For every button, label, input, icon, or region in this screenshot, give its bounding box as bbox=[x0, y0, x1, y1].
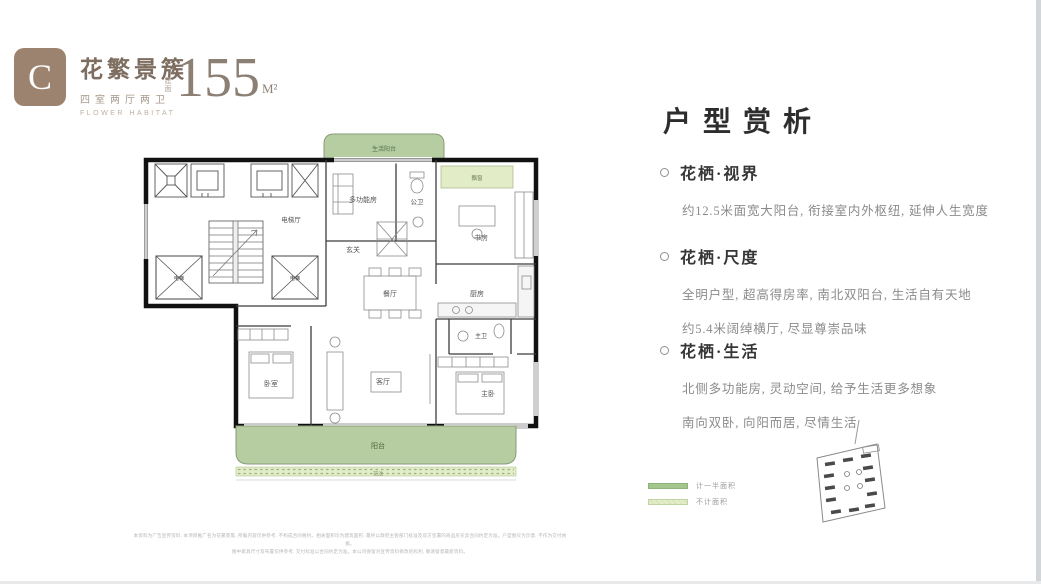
bedroom-label: 卧室 bbox=[264, 379, 278, 388]
no-count-label: 不计面积 bbox=[696, 497, 728, 507]
kitchen-label: 厨房 bbox=[470, 289, 484, 298]
area-unit: M² bbox=[262, 81, 277, 97]
keyplan-pointer bbox=[855, 420, 859, 444]
section-line: 约12.5米面宽大阳台, 衔接室内外枢纽, 延伸人生宽度 bbox=[682, 200, 989, 219]
unit-type-letter: C bbox=[28, 56, 52, 98]
disclaimer-line-2: 图中家具尺寸及布置仅供参考, 交付标准以合同约定为准。本公司保留对宣传资料修改的… bbox=[132, 548, 568, 556]
floorplan-drawing: 生活阳台 飘窗 bbox=[131, 124, 545, 504]
balcony-label: 阳台 bbox=[371, 441, 385, 450]
elevator-right-label: 电梯 bbox=[290, 275, 300, 282]
bay-window-label: 飘窗 bbox=[471, 174, 483, 182]
section-line: 全明户型, 超高得房率, 南北双阳台, 生活自有天地 bbox=[682, 284, 972, 303]
brochure-page: C 花繁景簇 四室两厅两卫 FLOWER HABITAT 建面 155 M² 生… bbox=[0, 0, 1041, 584]
disclaimer-line-1: 本资料为广告宣传资料, 本项目推广名为花繁景簇, 所载内容仅供参考, 不构成合同… bbox=[132, 532, 568, 548]
planter-label: 花池 bbox=[373, 471, 383, 478]
disclaimer: 本资料为广告宣传资料, 本项目推广名为花繁景簇, 所载内容仅供参考, 不构成合同… bbox=[132, 532, 568, 556]
section-line: 北侧多功能房, 灵动空间, 给予生活更多想象 bbox=[682, 378, 937, 397]
unit-type-badge: C bbox=[14, 48, 66, 106]
analysis-section-vision: 花栖·视界 约12.5米面宽大阳台, 衔接室内外枢纽, 延伸人生宽度 bbox=[660, 160, 989, 219]
legend-row-half-area: 计一半面积 bbox=[648, 481, 736, 491]
analysis-section-scale: 花栖·尺度 全明户型, 超高得房率, 南北双阳台, 生活自有天地 约5.4米阔绰… bbox=[660, 244, 972, 337]
study-label: 书房 bbox=[474, 233, 488, 242]
section-line: 约5.4米阔绰横厅, 尽显尊崇品味 bbox=[682, 318, 972, 337]
legend-row-no-count: 不计面积 bbox=[648, 497, 736, 507]
area-legend: 计一半面积 不计面积 bbox=[648, 481, 736, 513]
master-bath-label: 主卫 bbox=[475, 332, 487, 340]
unit-subtitle-en: FLOWER HABITAT bbox=[80, 110, 188, 117]
bullet-ring-icon bbox=[660, 252, 669, 261]
bullet-ring-icon bbox=[660, 168, 669, 177]
service-balcony-label: 生活阳台 bbox=[372, 145, 396, 153]
analysis-heading: 户型赏析 bbox=[663, 100, 823, 140]
south-balcony: 阳台 花池 bbox=[236, 426, 516, 480]
half-area-label: 计一半面积 bbox=[696, 481, 736, 491]
bay-window: 飘窗 bbox=[441, 166, 513, 188]
dining-label: 餐厅 bbox=[383, 289, 397, 298]
section-title: 花栖·尺度 bbox=[680, 244, 759, 268]
multifunction-room-label: 多功能房 bbox=[349, 195, 377, 204]
foyer-label: 玄关 bbox=[346, 245, 360, 254]
elevator-left-label: 电梯 bbox=[174, 275, 184, 282]
page-edge-right bbox=[1036, 0, 1041, 584]
bullet-ring-icon bbox=[660, 346, 669, 355]
area-block: 建面 155 M² bbox=[163, 52, 277, 105]
no-count-swatch bbox=[648, 499, 688, 505]
area-value: 155 bbox=[176, 52, 260, 105]
living-room-label: 客厅 bbox=[376, 377, 390, 386]
area-prefix-label: 建面 bbox=[163, 77, 173, 93]
public-bath-label: 公卫 bbox=[411, 198, 425, 206]
section-title: 花栖·生活 bbox=[680, 338, 759, 362]
elevator-hall-label: 电梯厅 bbox=[281, 215, 301, 224]
section-title: 花栖·视界 bbox=[680, 160, 759, 184]
master-bedroom-label: 主卧 bbox=[481, 389, 495, 398]
unit-location-keyplan bbox=[797, 418, 897, 528]
half-area-swatch bbox=[648, 483, 688, 489]
